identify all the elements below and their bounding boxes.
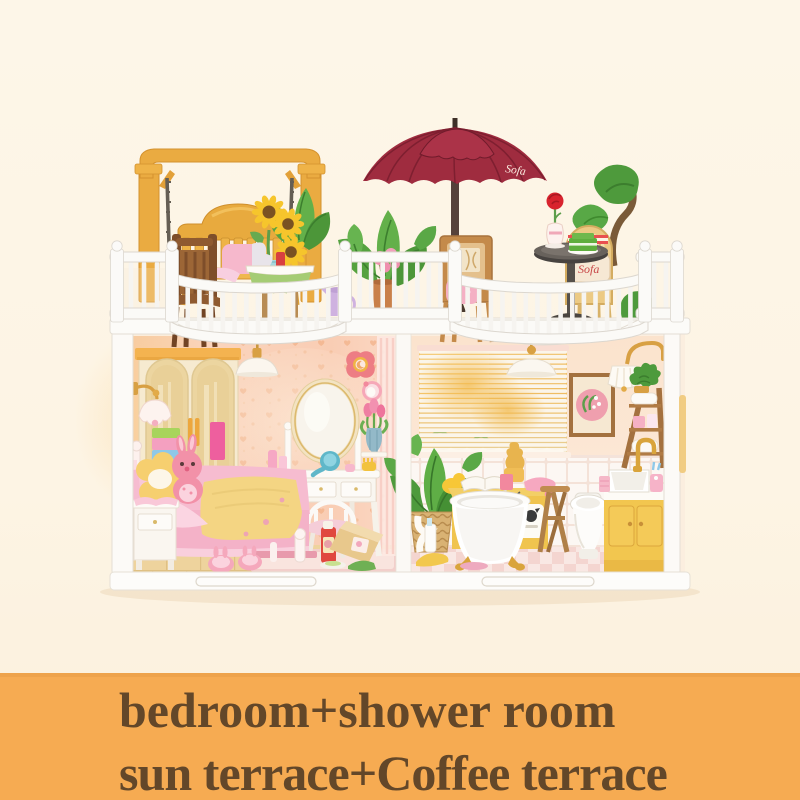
svg-text:Sofa: Sofa xyxy=(578,262,599,276)
svg-text:bedroom+shower room: bedroom+shower room xyxy=(119,682,616,738)
svg-text:sun terrace+Coffee terrace: sun terrace+Coffee terrace xyxy=(119,745,667,800)
